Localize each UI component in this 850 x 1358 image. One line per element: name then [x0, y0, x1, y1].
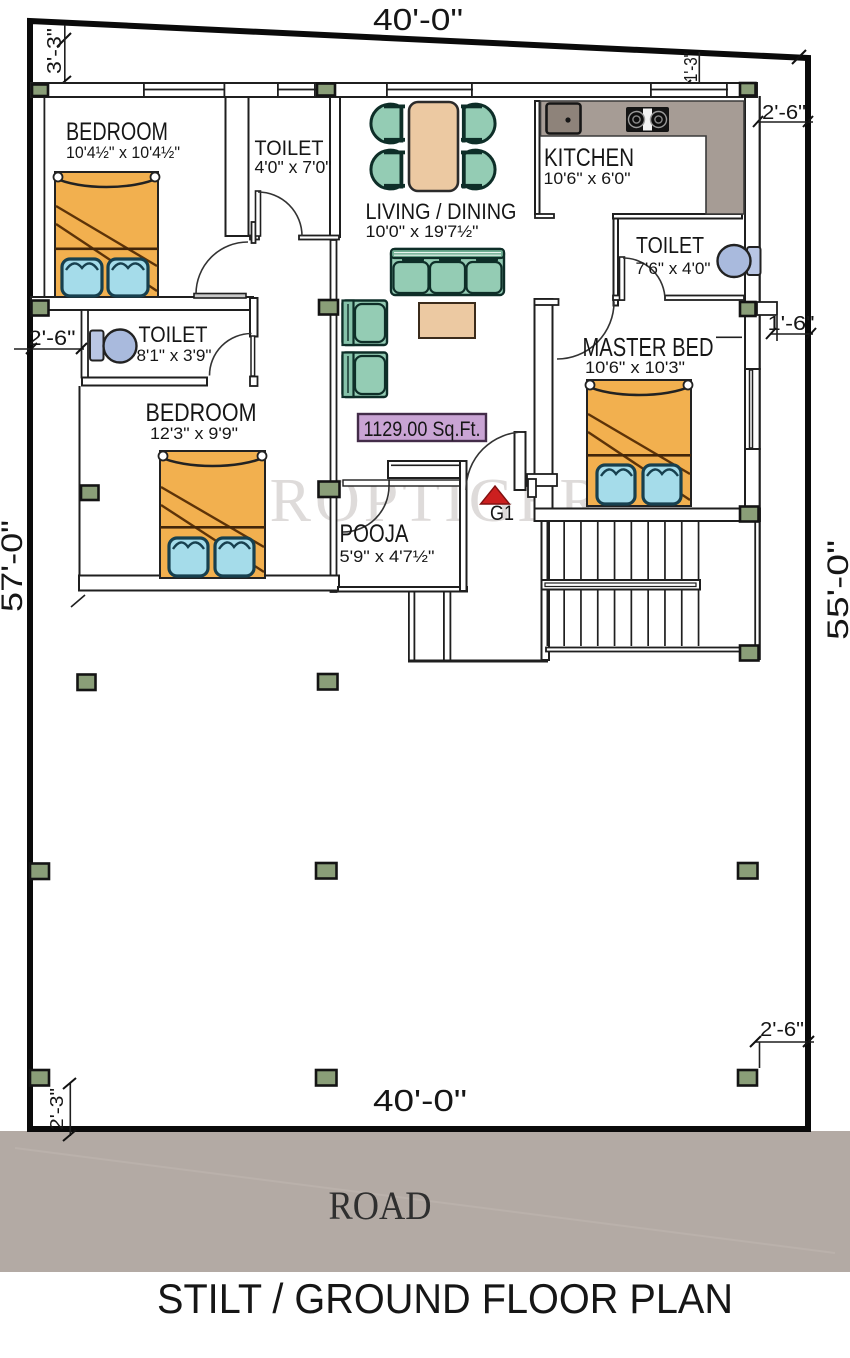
svg-text:1129.00 Sq.Ft.: 1129.00 Sq.Ft. [364, 418, 481, 441]
svg-text:2'-6": 2'-6" [760, 1019, 804, 1041]
svg-text:40'-0": 40'-0" [373, 2, 463, 37]
svg-text:TOILET: TOILET [139, 322, 208, 347]
svg-text:55'-0": 55'-0" [822, 540, 850, 640]
svg-text:4'0" x 7'0": 4'0" x 7'0" [255, 157, 332, 177]
svg-text:2'-6": 2'-6" [762, 102, 806, 124]
svg-text:57'-0": 57'-0" [0, 520, 29, 612]
svg-text:10'6" x 6'0": 10'6" x 6'0" [544, 169, 631, 188]
svg-text:ROAD: ROAD [329, 1183, 432, 1228]
svg-text:BEDROOM: BEDROOM [66, 118, 168, 146]
svg-text:POOJA: POOJA [340, 520, 409, 548]
svg-text:TOILET: TOILET [636, 232, 704, 258]
svg-text:KITCHEN: KITCHEN [544, 144, 634, 172]
svg-text:1'-6": 1'-6" [768, 313, 815, 335]
svg-text:1'-3": 1'-3" [681, 52, 701, 82]
svg-text:10'0" x 19'7½": 10'0" x 19'7½" [366, 222, 479, 241]
svg-text:2'-3": 2'-3" [47, 1088, 67, 1130]
svg-text:5'9" x 4'7½": 5'9" x 4'7½" [340, 548, 435, 566]
svg-text:2'-6": 2'-6" [29, 327, 76, 350]
svg-text:LIVING / DINING: LIVING / DINING [366, 199, 517, 224]
svg-text:10'6" x 10'3": 10'6" x 10'3" [585, 358, 685, 377]
svg-text:G1: G1 [490, 502, 514, 525]
svg-text:12'3" x 9'9": 12'3" x 9'9" [150, 424, 238, 443]
svg-text:40'-0": 40'-0" [373, 1083, 467, 1118]
svg-text:7'6" x 4'0": 7'6" x 4'0" [636, 259, 711, 278]
svg-text:3'-3": 3'-3" [44, 28, 66, 74]
svg-text:10'4½" x 10'4½": 10'4½" x 10'4½" [66, 143, 180, 162]
svg-text:STILT / GROUND FLOOR PLAN: STILT / GROUND FLOOR PLAN [157, 1275, 733, 1322]
svg-text:BEDROOM: BEDROOM [146, 399, 257, 427]
svg-text:8'1" x 3'9": 8'1" x 3'9" [137, 346, 212, 365]
